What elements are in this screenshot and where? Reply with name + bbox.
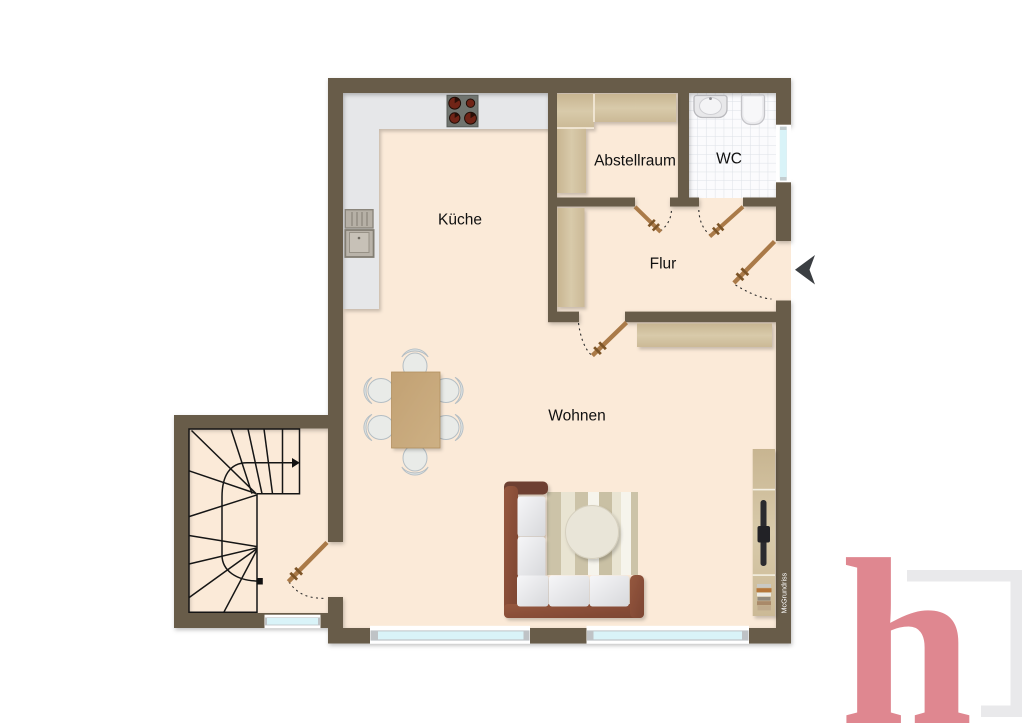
svg-text:Küche: Küche [438, 212, 482, 229]
svg-text:WC: WC [716, 151, 742, 168]
svg-text:Flur: Flur [650, 256, 677, 273]
svg-text:McGrundriss: McGrundriss [779, 572, 788, 613]
svg-text:Abstellraum: Abstellraum [594, 153, 676, 170]
svg-text:Wohnen: Wohnen [548, 408, 605, 425]
svg-text:h: h [840, 510, 973, 724]
